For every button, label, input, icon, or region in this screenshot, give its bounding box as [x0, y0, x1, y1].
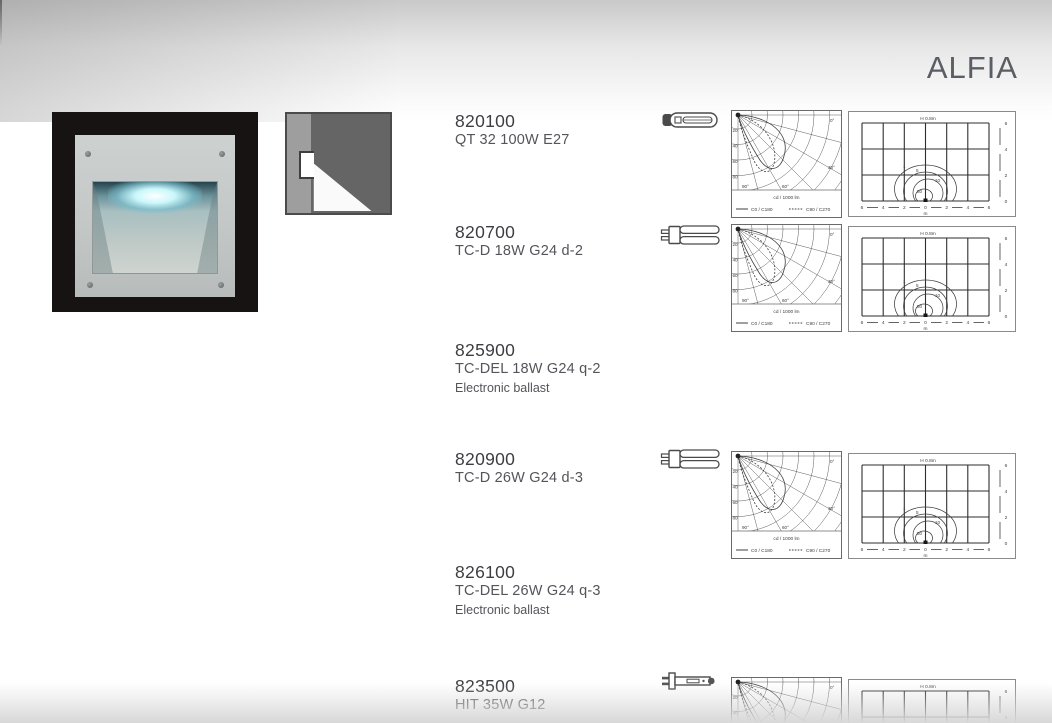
- svg-text:6: 6: [1005, 463, 1008, 469]
- luminaire-recess: [93, 182, 217, 273]
- svg-text:50: 50: [917, 531, 923, 536]
- isolux-diagram-slot: H 0.8m 1 5 10 50 6 4 2 0 2 4: [848, 679, 1016, 723]
- compact-fluorescent-lamp-icon: [660, 223, 722, 247]
- svg-text:6: 6: [861, 547, 864, 553]
- svg-text:2: 2: [903, 205, 906, 211]
- polar-intensity-diagram: 0° 30° 60° 90° 20 40 60 80 cd / 1000 lm …: [731, 677, 842, 723]
- svg-text:6: 6: [861, 205, 864, 211]
- luminaire-faceplate: [75, 135, 235, 297]
- product-row: 826100 TC-DEL 26W G24 q-3 Electronic bal…: [455, 562, 715, 618]
- polar-legend-dashed: C90 / C270: [806, 548, 831, 554]
- isolux-cone-diagram: H 0.8m 1 5 10 50 6 4 2 0 2 4: [848, 453, 1016, 559]
- svg-text:2: 2: [903, 320, 906, 326]
- svg-text:30°: 30°: [828, 165, 835, 170]
- svg-text:20: 20: [733, 128, 739, 133]
- svg-text:0°: 0°: [830, 685, 835, 690]
- screw-icon: [219, 151, 225, 157]
- svg-text:2: 2: [1005, 288, 1008, 294]
- svg-text:90°: 90°: [742, 298, 749, 303]
- screw-icon: [87, 282, 93, 288]
- svg-text:6: 6: [988, 547, 991, 553]
- svg-text:5: 5: [916, 510, 919, 515]
- svg-text:1: 1: [903, 506, 906, 511]
- polar-unit-label: cd / 1000 lm: [773, 536, 799, 542]
- metal-halide-lamp-icon: [660, 669, 722, 693]
- svg-text:80: 80: [733, 516, 739, 521]
- isolux-title: H 0.8m: [920, 458, 935, 464]
- isolux-cone-diagram: H 0.8m 1 5 10 50 6 4 2 0 2 4: [848, 679, 1016, 723]
- svg-text:90°: 90°: [742, 525, 749, 530]
- isolux-unit-label: m: [924, 212, 928, 217]
- svg-text:4: 4: [882, 320, 885, 326]
- svg-text:0°: 0°: [830, 118, 835, 123]
- svg-text:10: 10: [935, 520, 941, 525]
- svg-text:40: 40: [733, 711, 739, 716]
- svg-text:30°: 30°: [828, 506, 835, 511]
- polar-unit-label: cd / 1000 lm: [773, 195, 799, 201]
- product-code: 825900: [455, 340, 715, 360]
- polar-intensity-diagram: 0° 30° 60° 90° 20 40 60 80 cd / 1000 lm …: [731, 110, 842, 218]
- svg-text:0: 0: [1005, 314, 1008, 320]
- svg-text:60: 60: [733, 273, 739, 278]
- polar-legend-solid: C0 / C180: [751, 321, 773, 327]
- lamp-icon-slot: [660, 223, 722, 247]
- polar-legend-solid: C0 / C180: [751, 207, 773, 213]
- product-lamp: TC-DEL 26W G24 q-3: [455, 583, 715, 600]
- screw-icon: [218, 282, 224, 288]
- svg-text:0°: 0°: [830, 459, 835, 464]
- svg-text:50: 50: [917, 189, 923, 194]
- product-lamp: TC-DEL 18W G24 q-2: [455, 361, 715, 378]
- svg-text:0: 0: [924, 205, 927, 211]
- screw-icon: [85, 151, 91, 157]
- product-lamp: TC-D 26W G24 d-3: [455, 470, 715, 487]
- isolux-title: H 0.8m: [920, 684, 935, 690]
- svg-text:60°: 60°: [782, 298, 789, 303]
- svg-text:6: 6: [988, 205, 991, 211]
- svg-text:60: 60: [733, 159, 739, 164]
- polar-unit-label: cd / 1000 lm: [773, 309, 799, 315]
- isolux-title: H 0.8m: [920, 116, 935, 122]
- isolux-unit-label: m: [924, 554, 928, 559]
- svg-text:0: 0: [1005, 199, 1008, 205]
- svg-text:2: 2: [1005, 515, 1008, 521]
- svg-text:4: 4: [1005, 147, 1008, 153]
- svg-text:2: 2: [945, 205, 948, 211]
- page-top-shadow: [0, 0, 1052, 122]
- catalog-page: ALFIA 820100 QT 32 100W E27 820700 TC-D …: [0, 0, 1052, 723]
- svg-text:5: 5: [916, 283, 919, 288]
- product-ballast-note: Electronic ballast: [455, 381, 715, 396]
- svg-text:50: 50: [917, 304, 923, 309]
- isolux-unit-label: m: [924, 327, 928, 332]
- svg-text:4: 4: [1005, 489, 1008, 495]
- svg-text:0: 0: [1005, 541, 1008, 547]
- svg-text:0: 0: [924, 320, 927, 326]
- svg-text:1: 1: [903, 164, 906, 169]
- svg-text:40: 40: [733, 144, 739, 149]
- polar-legend-dashed: C90 / C270: [806, 207, 831, 213]
- svg-text:20: 20: [733, 469, 739, 474]
- svg-text:6: 6: [1005, 121, 1008, 127]
- svg-text:80: 80: [733, 289, 739, 294]
- polar-diagram-slot: 0° 30° 60° 90° 20 40 60 80 cd / 1000 lm …: [731, 677, 842, 723]
- svg-text:90°: 90°: [742, 184, 749, 189]
- svg-text:4: 4: [966, 547, 969, 553]
- product-row: 825900 TC-DEL 18W G24 q-2 Electronic bal…: [455, 340, 715, 396]
- svg-text:4: 4: [1005, 262, 1008, 268]
- isolux-cone-diagram: H 0.8m 1 5 10 50 6 4 2 0 2 4: [848, 111, 1016, 217]
- svg-text:40: 40: [733, 485, 739, 490]
- recessed-housing: [299, 151, 314, 179]
- svg-text:0: 0: [924, 547, 927, 553]
- svg-text:2: 2: [945, 320, 948, 326]
- product-photo: [52, 112, 258, 312]
- lamp-icon-slot: [660, 447, 722, 471]
- polar-legend-solid: C0 / C180: [751, 548, 773, 554]
- product-ballast-note: Electronic ballast: [455, 603, 715, 618]
- polar-diagram-slot: 0° 30° 60° 90° 20 40 60 80 cd / 1000 lm …: [731, 110, 842, 223]
- product-lamp: HIT 35W G12: [455, 697, 715, 714]
- polar-legend-dashed: C90 / C270: [806, 321, 831, 327]
- svg-text:2: 2: [1005, 173, 1008, 179]
- svg-text:20: 20: [733, 242, 739, 247]
- lamp-icon-slot: [660, 108, 722, 132]
- svg-text:4: 4: [882, 547, 885, 553]
- svg-text:4: 4: [882, 205, 885, 211]
- page-title: ALFIA: [927, 50, 1018, 86]
- polar-intensity-diagram: 0° 30° 60° 90° 20 40 60 80 cd / 1000 lm …: [731, 224, 842, 332]
- svg-text:4: 4: [966, 205, 969, 211]
- isolux-diagram-slot: H 0.8m 1 5 10 50 6 4 2 0 2 4: [848, 111, 1016, 222]
- svg-text:60: 60: [733, 500, 739, 505]
- svg-text:20: 20: [733, 695, 739, 700]
- svg-text:6: 6: [861, 320, 864, 326]
- svg-text:10: 10: [935, 178, 941, 183]
- svg-text:60°: 60°: [782, 525, 789, 530]
- svg-text:5: 5: [916, 168, 919, 173]
- svg-text:40: 40: [733, 258, 739, 263]
- isolux-diagram-slot: H 0.8m 1 5 10 50 6 4 2 0 2 4: [848, 453, 1016, 564]
- product-lamp: QT 32 100W E27: [455, 132, 715, 149]
- svg-text:2: 2: [903, 547, 906, 553]
- svg-text:6: 6: [988, 320, 991, 326]
- svg-text:6: 6: [1005, 689, 1008, 695]
- polar-diagram-slot: 0° 30° 60° 90° 20 40 60 80 cd / 1000 lm …: [731, 224, 842, 337]
- isolux-cone-diagram: H 0.8m 1 5 10 50 6 4 2 0 2 4: [848, 226, 1016, 332]
- svg-text:30°: 30°: [828, 279, 835, 284]
- svg-text:60°: 60°: [782, 184, 789, 189]
- svg-text:4: 4: [1005, 715, 1008, 721]
- svg-text:4: 4: [966, 320, 969, 326]
- svg-text:2: 2: [945, 547, 948, 553]
- svg-text:80: 80: [733, 175, 739, 180]
- product-code: 826100: [455, 562, 715, 582]
- lamp-glow: [108, 182, 202, 213]
- page-edge-artifact: [0, 0, 2, 46]
- polar-diagram-slot: 0° 30° 60° 90° 20 40 60 80 cd / 1000 lm …: [731, 451, 842, 564]
- isolux-diagram-slot: H 0.8m 1 5 10 50 6 4 2 0 2 4: [848, 226, 1016, 337]
- svg-text:1: 1: [903, 279, 906, 284]
- svg-text:10: 10: [935, 293, 941, 298]
- polar-intensity-diagram: 0° 30° 60° 90° 20 40 60 80 cd / 1000 lm …: [731, 451, 842, 559]
- svg-text:6: 6: [1005, 236, 1008, 242]
- svg-text:0°: 0°: [830, 232, 835, 237]
- halogen-lamp-icon: [660, 108, 722, 132]
- isolux-title: H 0.8m: [920, 231, 935, 237]
- compact-fluorescent-lamp-icon: [660, 447, 722, 471]
- lamp-icon-slot: [660, 669, 722, 693]
- wall-recessed-mounting-icon: [285, 112, 392, 215]
